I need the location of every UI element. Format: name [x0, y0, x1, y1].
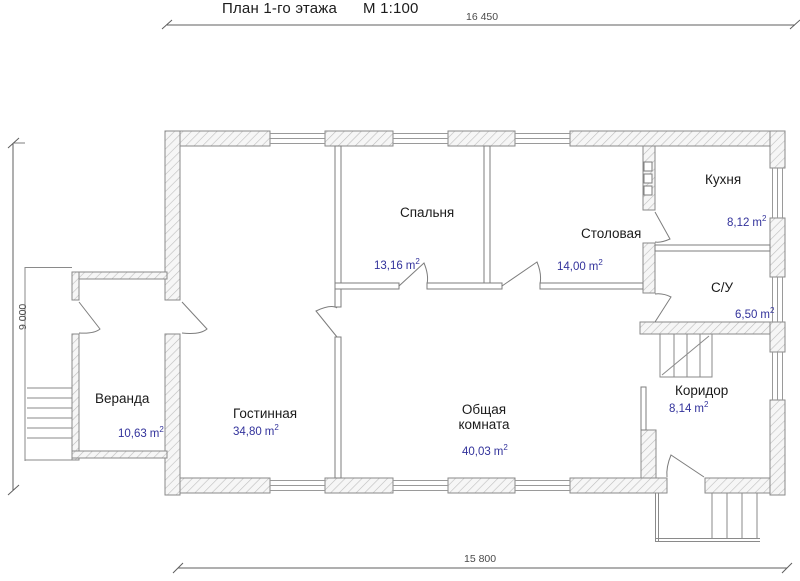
dimension-bottom: 15 800 — [464, 553, 496, 565]
dimension-left: 9 000 — [17, 304, 29, 330]
room-area-veranda: 10,63m2 — [118, 425, 164, 440]
area-unit: m — [694, 403, 704, 415]
area-unit: m — [760, 309, 770, 321]
area-sup: 2 — [704, 400, 708, 409]
area-unit: m — [406, 260, 416, 272]
outdoor-stair-left — [25, 267, 72, 461]
room-area-bedroom: 13,16m2 — [374, 257, 420, 272]
door-veranda-exterior — [79, 302, 100, 333]
door-kitchen — [655, 212, 670, 242]
internal-staircase — [660, 334, 712, 377]
plan-scale: М 1:100 — [363, 0, 419, 17]
room-label-dining: Столовая — [581, 226, 641, 241]
room-area-bathroom: 6,50m2 — [735, 306, 774, 321]
floor-plan-drawing — [0, 0, 800, 581]
room-label-bedroom: Спальня — [400, 205, 454, 220]
area-unit: m — [752, 217, 762, 229]
area-value: 14,00 — [557, 261, 586, 273]
area-sup: 2 — [274, 423, 278, 432]
room-area-corridor: 8,14m2 — [669, 400, 708, 415]
room-label-bathroom: С/У — [711, 280, 733, 295]
area-sup: 2 — [503, 443, 507, 452]
door-dining — [502, 262, 541, 286]
dimension-top: 16 450 — [466, 11, 498, 23]
area-unit: m — [589, 261, 599, 273]
partition-walls — [335, 146, 770, 478]
door-bathroom — [655, 294, 671, 322]
room-area-living-room: 34,80m2 — [233, 423, 279, 438]
area-value: 34,80 — [233, 426, 262, 438]
room-area-common-room: 40,03m2 — [462, 443, 508, 458]
area-sup: 2 — [770, 306, 774, 315]
windows — [270, 134, 783, 491]
area-value: 8,14 — [669, 403, 691, 415]
door-veranda-living — [182, 302, 207, 334]
page-title: План 1-го этажа — [222, 0, 337, 17]
area-sup: 2 — [598, 258, 602, 267]
area-unit: m — [494, 446, 504, 458]
area-value: 13,16 — [374, 260, 403, 272]
area-value: 10,63 — [118, 428, 147, 440]
room-label-corridor: Коридор — [675, 383, 728, 398]
area-sup: 2 — [159, 425, 163, 434]
room-area-kitchen: 8,12m2 — [727, 214, 766, 229]
area-unit: m — [265, 426, 275, 438]
area-value: 6,50 — [735, 309, 757, 321]
area-value: 40,03 — [462, 446, 491, 458]
room-label-kitchen: Кухня — [705, 172, 741, 187]
door-entrance — [667, 455, 704, 477]
area-sup: 2 — [415, 257, 419, 266]
room-area-dining: 14,00m2 — [557, 258, 603, 273]
area-value: 8,12 — [727, 217, 749, 229]
room-label-common-room: Общая комната — [443, 402, 525, 432]
area-sup: 2 — [762, 214, 766, 223]
room-label-veranda: Веранда — [95, 391, 149, 406]
area-unit: m — [150, 428, 160, 440]
entrance-porch — [655, 493, 760, 542]
floor-plan-page: План 1-го этажа М 1:100 16 450 15 800 9 … — [0, 0, 800, 581]
door-living-common — [316, 307, 337, 337]
exterior-walls — [165, 131, 785, 495]
room-label-living-room: Гостинная — [233, 406, 297, 421]
